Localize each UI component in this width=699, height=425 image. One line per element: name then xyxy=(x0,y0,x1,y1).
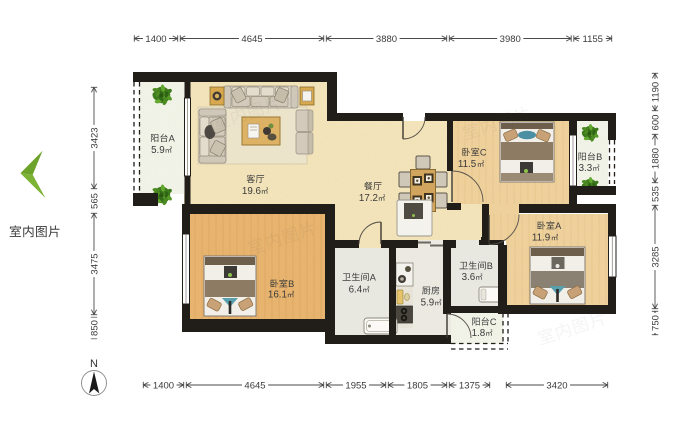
svg-text:1375: 1375 xyxy=(459,380,480,391)
svg-text:535: 535 xyxy=(650,186,661,202)
svg-text:C: C xyxy=(480,147,487,157)
svg-text:C: C xyxy=(490,317,497,327)
svg-text:B: B xyxy=(487,261,493,271)
svg-text:1190: 1190 xyxy=(650,82,661,102)
svg-text:B: B xyxy=(596,152,602,162)
svg-text:750: 750 xyxy=(650,315,661,331)
svg-text:6.4: 6.4 xyxy=(349,285,363,296)
svg-text:1400: 1400 xyxy=(145,34,166,45)
svg-text:600: 600 xyxy=(650,115,661,131)
svg-text:A: A xyxy=(169,133,176,143)
svg-text:19.6: 19.6 xyxy=(242,186,262,197)
svg-text:11.9: 11.9 xyxy=(532,233,550,244)
svg-text:1880: 1880 xyxy=(650,148,661,169)
svg-text:565: 565 xyxy=(89,193,100,209)
svg-text:1955: 1955 xyxy=(345,380,366,391)
svg-text:N: N xyxy=(90,358,98,370)
svg-text:B: B xyxy=(288,279,294,289)
svg-text:3423: 3423 xyxy=(89,127,100,148)
svg-text:3980: 3980 xyxy=(500,34,521,45)
svg-text:5.9: 5.9 xyxy=(151,145,165,156)
svg-text:3475: 3475 xyxy=(89,253,100,274)
svg-text:5.9: 5.9 xyxy=(421,298,435,309)
svg-text:4645: 4645 xyxy=(244,380,265,391)
svg-text:3.6: 3.6 xyxy=(462,272,476,283)
svg-text:1.8: 1.8 xyxy=(472,328,486,339)
svg-text:1805: 1805 xyxy=(407,380,428,391)
svg-text:3.3: 3.3 xyxy=(579,163,593,174)
svg-text:1155: 1155 xyxy=(583,34,603,45)
svg-text:11.5: 11.5 xyxy=(458,159,477,170)
svg-text:3285: 3285 xyxy=(650,246,661,267)
svg-text:850: 850 xyxy=(89,320,100,336)
svg-text:1400: 1400 xyxy=(153,380,174,391)
svg-text:17.2: 17.2 xyxy=(359,193,378,204)
svg-text:4645: 4645 xyxy=(241,34,262,45)
svg-text:3420: 3420 xyxy=(546,380,567,391)
svg-text:A: A xyxy=(555,221,562,231)
svg-text:3880: 3880 xyxy=(376,34,397,45)
svg-text:A: A xyxy=(370,272,377,282)
svg-text:16.1: 16.1 xyxy=(268,290,287,301)
